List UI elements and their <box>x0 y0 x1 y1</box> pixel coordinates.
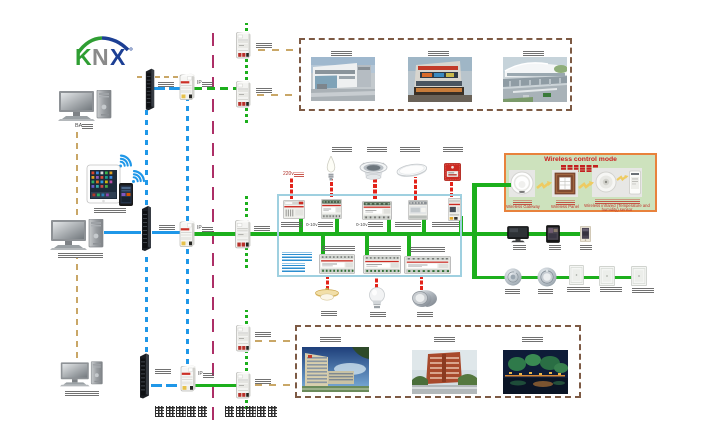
svg-text:N: N <box>92 44 109 68</box>
svg-text:K: K <box>75 44 92 68</box>
svg-text:X: X <box>110 44 126 68</box>
